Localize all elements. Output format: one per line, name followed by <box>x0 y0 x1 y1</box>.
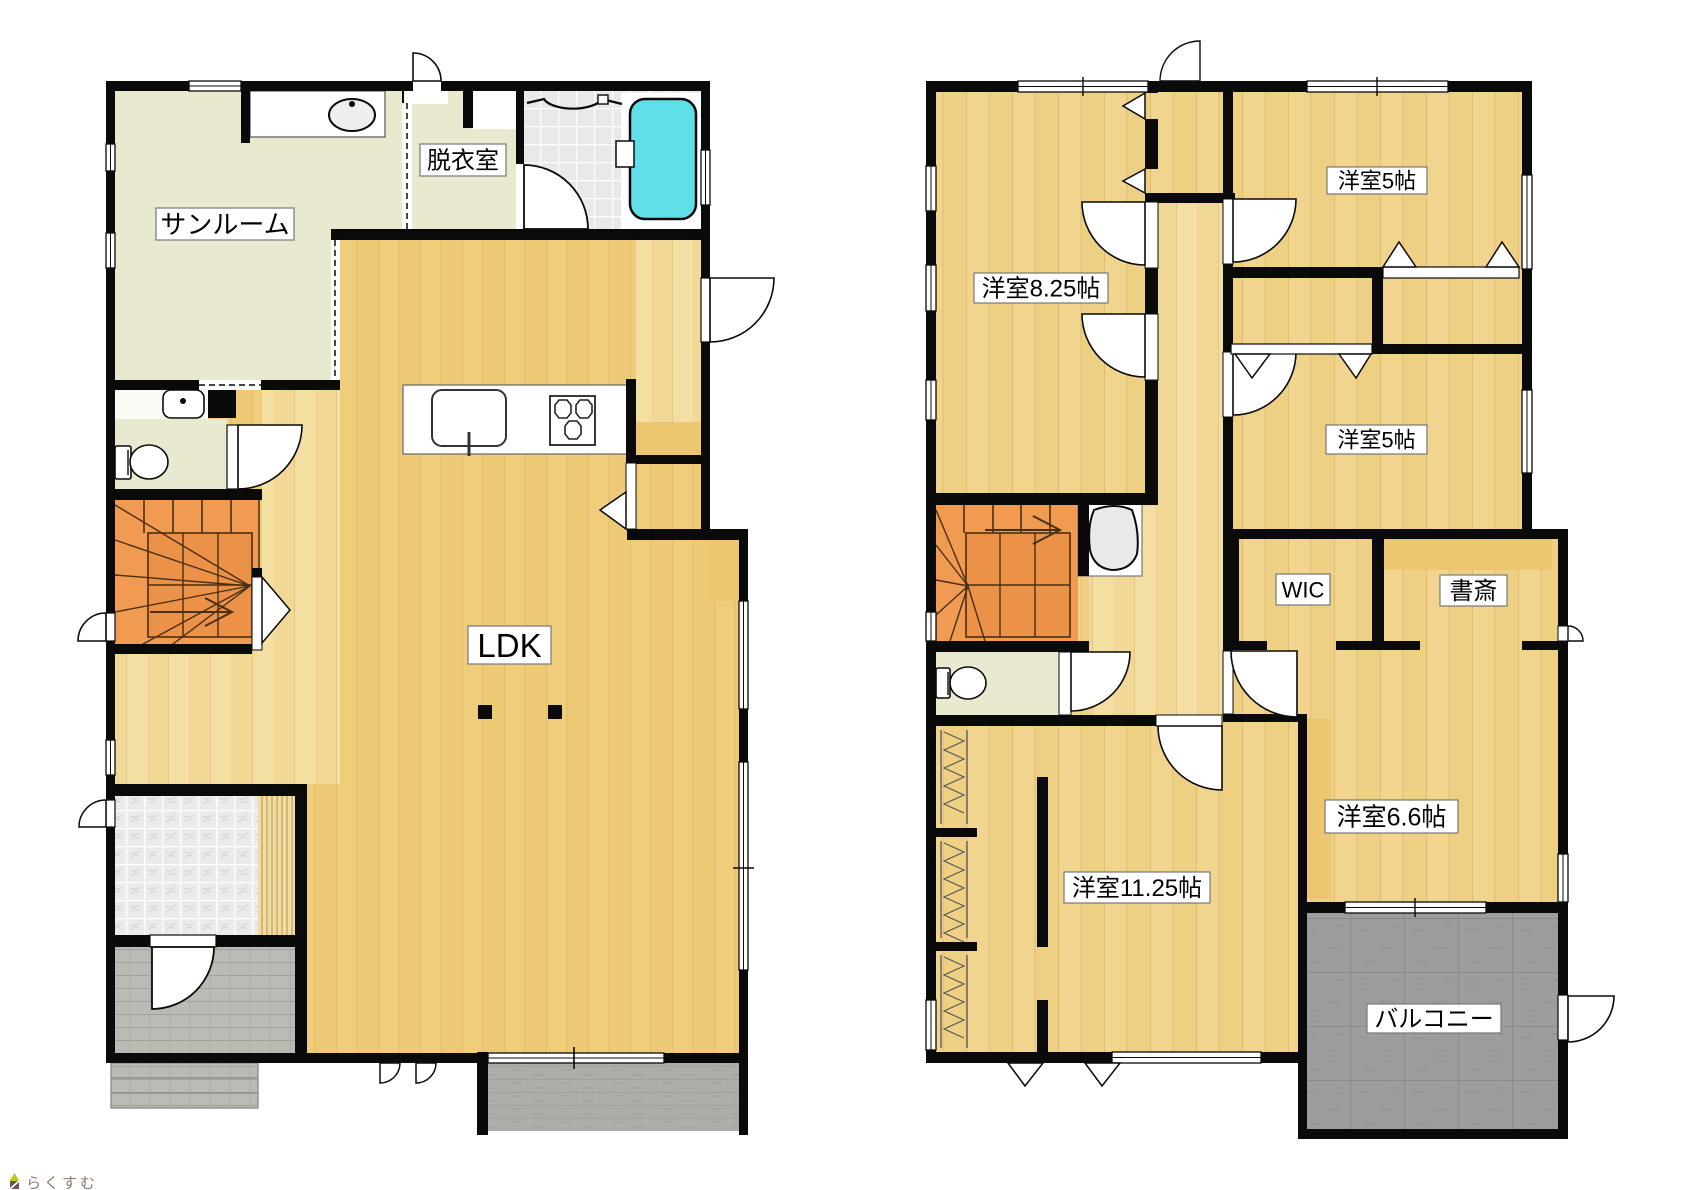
svg-text:洋室6.6帖: 洋室6.6帖 <box>1337 804 1447 832</box>
svg-text:LDK: LDK <box>477 627 541 664</box>
svg-text:脱衣室: 脱衣室 <box>427 148 499 175</box>
svg-text:らくすむ: らくすむ <box>26 1175 98 1190</box>
svg-text:洋室5帖: 洋室5帖 <box>1337 427 1415 452</box>
svg-text:書斎: 書斎 <box>1450 578 1498 605</box>
svg-text:サンルーム: サンルーム <box>160 209 289 239</box>
svg-text:バルコニー: バルコニー <box>1374 1006 1494 1033</box>
svg-text:洋室11.25帖: 洋室11.25帖 <box>1072 875 1202 902</box>
svg-text:洋室8.25帖: 洋室8.25帖 <box>982 276 1101 303</box>
svg-text:洋室5帖: 洋室5帖 <box>1338 168 1416 193</box>
svg-text:WIC: WIC <box>1282 577 1325 602</box>
